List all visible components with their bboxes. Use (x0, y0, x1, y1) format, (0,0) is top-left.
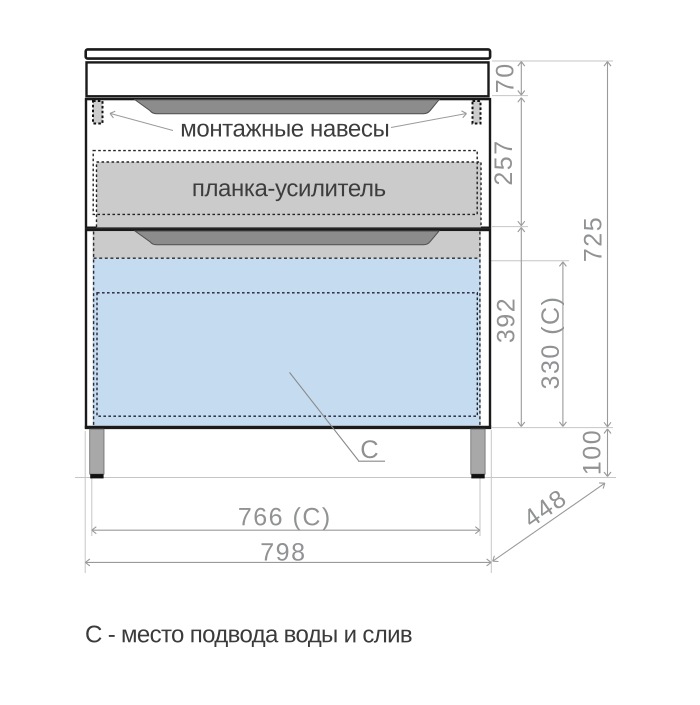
svg-text:планка-усилитель: планка-усилитель (192, 175, 386, 202)
svg-text:448: 448 (519, 484, 573, 533)
svg-text:798: 798 (260, 538, 306, 566)
svg-text:330 (C): 330 (C) (537, 296, 565, 390)
svg-text:257: 257 (490, 139, 518, 185)
svg-text:C: C (360, 436, 378, 464)
svg-text:392: 392 (493, 297, 521, 343)
svg-text:70: 70 (492, 62, 520, 93)
svg-text:монтажные навесы: монтажные навесы (180, 115, 389, 142)
svg-text:766 (C): 766 (C) (238, 503, 332, 531)
svg-text:100: 100 (579, 429, 607, 475)
svg-text:725: 725 (580, 216, 608, 262)
svg-text:С - место подвода воды и слив: С - место подвода воды и слив (85, 621, 412, 648)
